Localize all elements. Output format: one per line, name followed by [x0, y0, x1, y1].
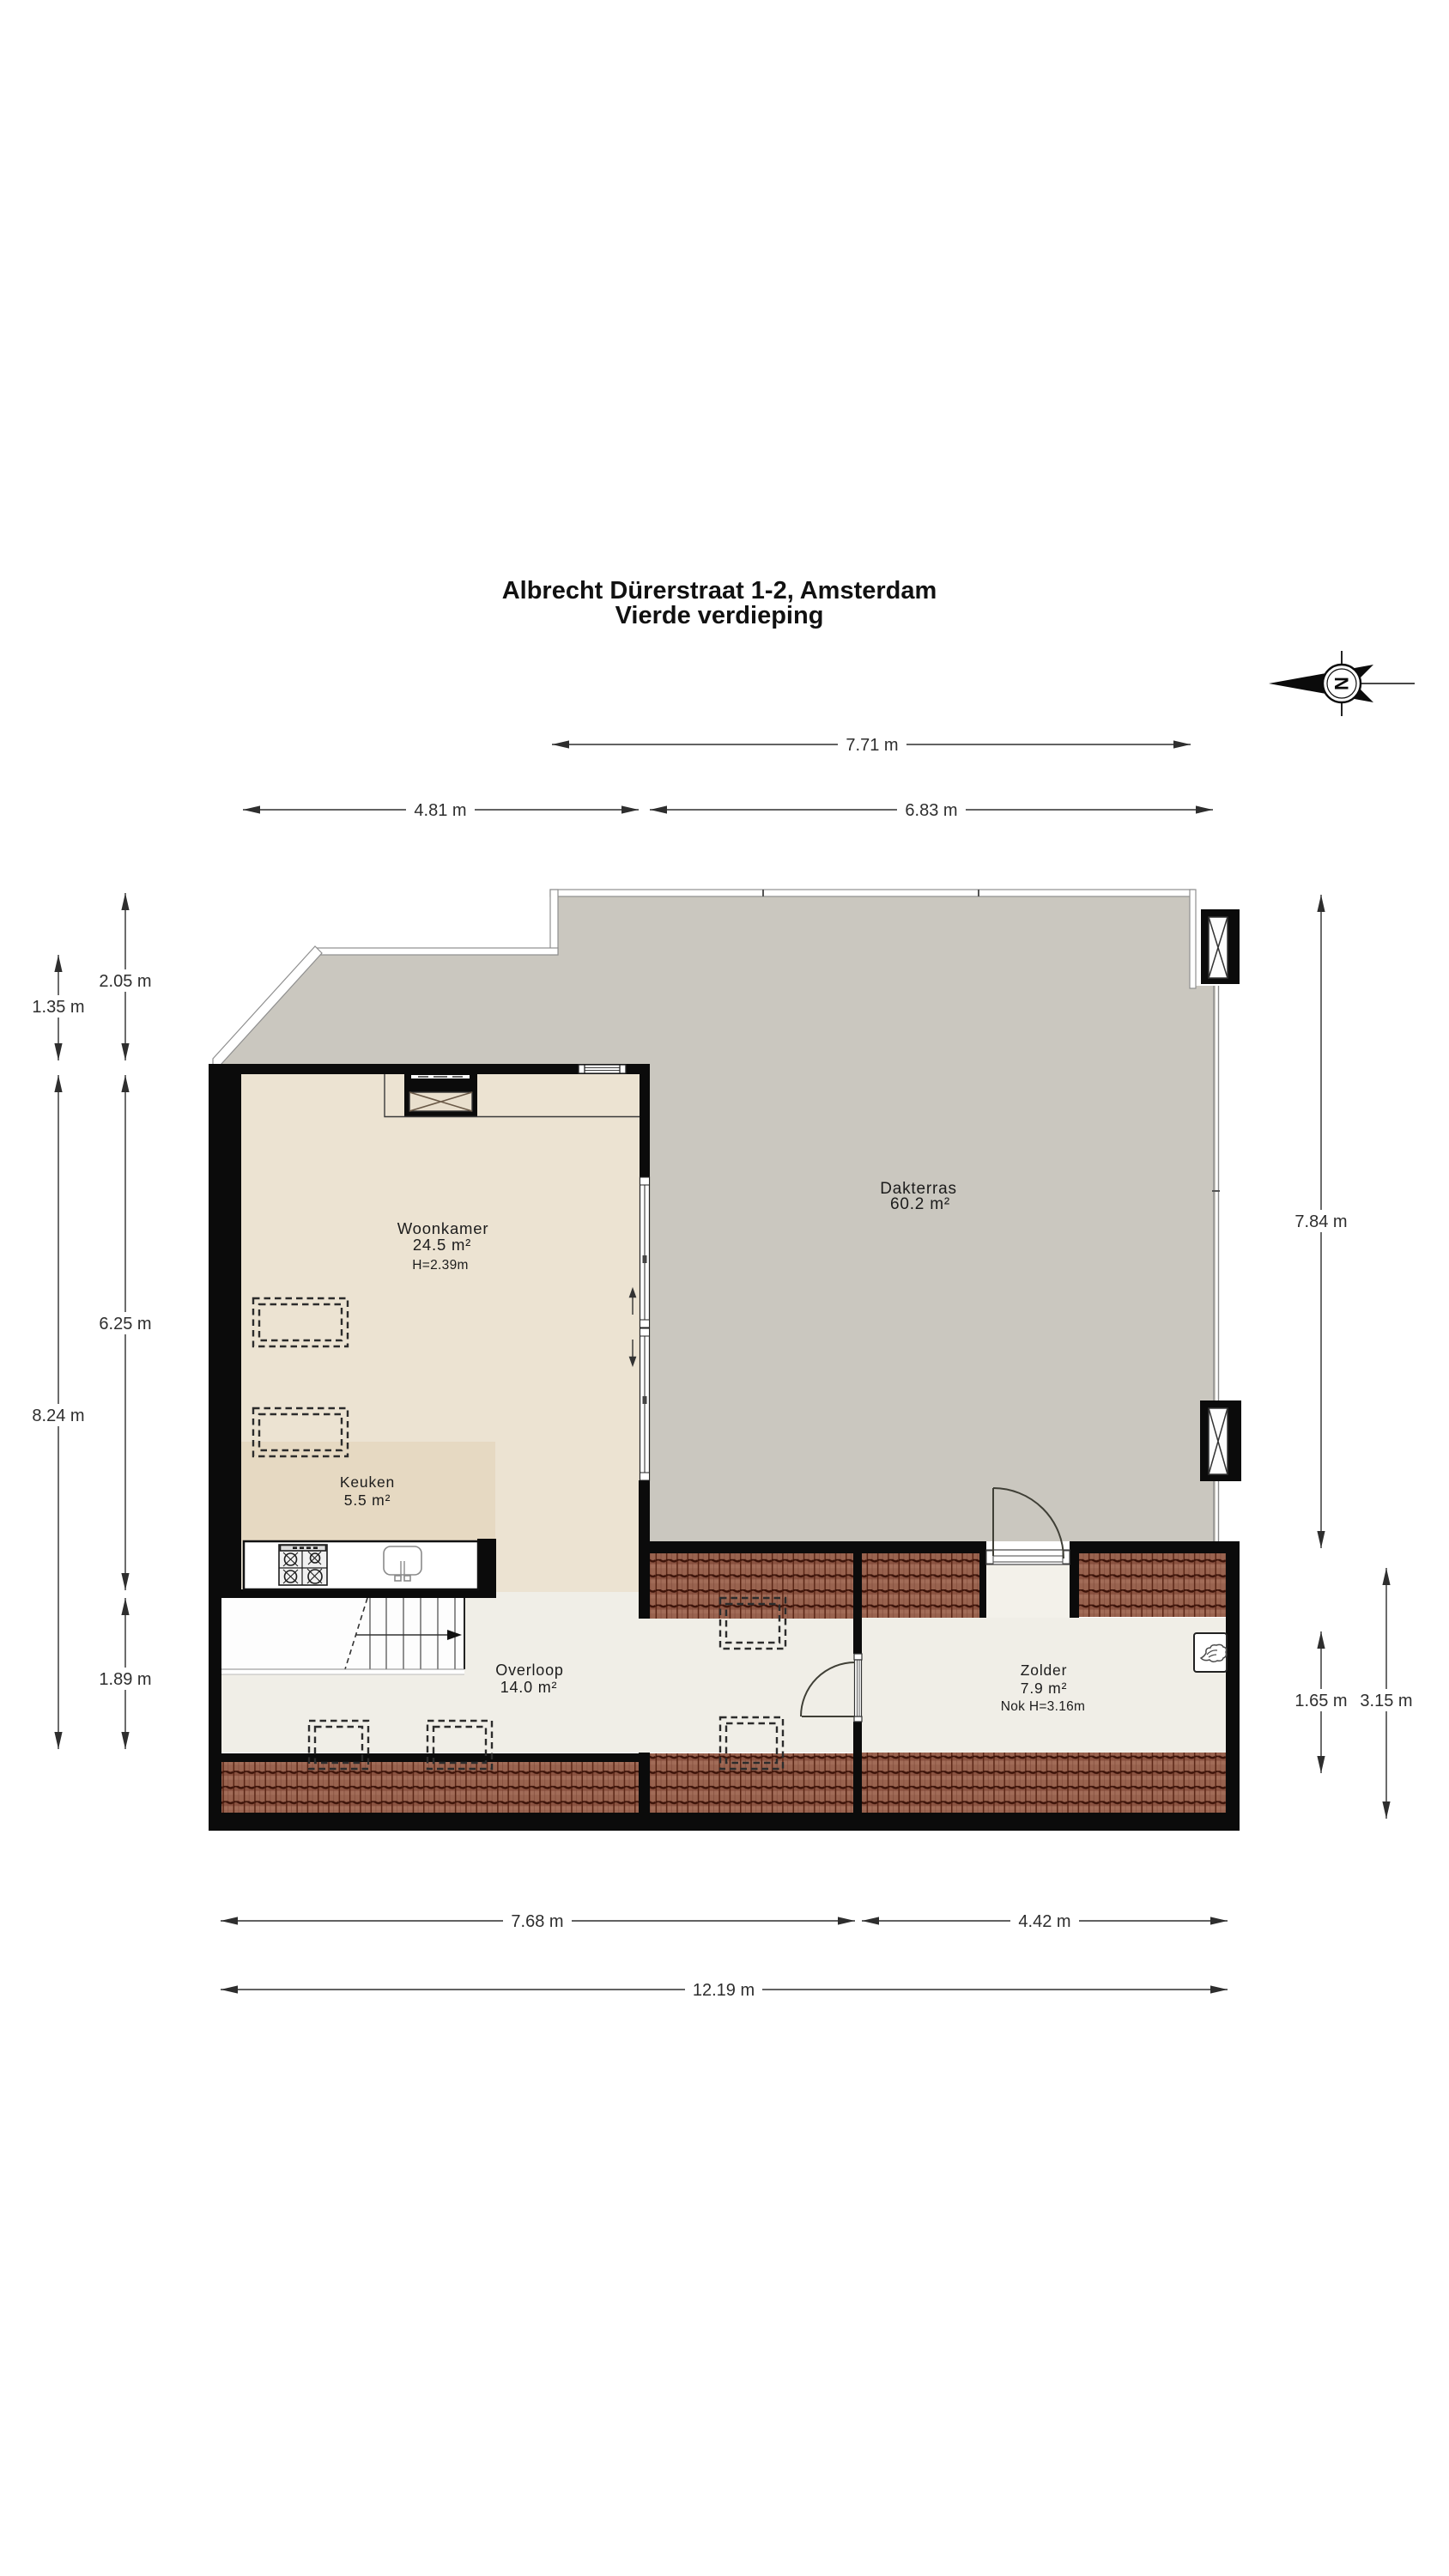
svg-text:8.24 m: 8.24 m — [32, 1406, 84, 1425]
svg-text:7.68 m: 7.68 m — [511, 1912, 563, 1931]
svg-text:3.15 m: 3.15 m — [1360, 1692, 1412, 1710]
svg-text:4.42 m: 4.42 m — [1018, 1912, 1070, 1931]
svg-text:Keuken: Keuken — [340, 1473, 395, 1491]
svg-text:4.81 m: 4.81 m — [414, 801, 466, 820]
svg-text:Zolder: Zolder — [1021, 1662, 1067, 1679]
svg-text:14.0 m²: 14.0 m² — [500, 1679, 558, 1696]
svg-text:1.65 m: 1.65 m — [1294, 1692, 1347, 1710]
svg-text:Albrecht Dürerstraat 1-2, Amst: Albrecht Dürerstraat 1-2, Amsterdam — [502, 577, 937, 605]
svg-text:7.9 m²: 7.9 m² — [1021, 1680, 1067, 1697]
svg-text:60.2 m²: 60.2 m² — [890, 1195, 950, 1213]
svg-text:7.84 m: 7.84 m — [1294, 1212, 1347, 1231]
svg-text:Overloop: Overloop — [495, 1662, 563, 1679]
svg-text:7.71 m: 7.71 m — [846, 736, 898, 755]
svg-text:Woonkamer: Woonkamer — [397, 1219, 489, 1237]
svg-text:Vierde verdieping: Vierde verdieping — [615, 602, 824, 629]
svg-text:2.05 m: 2.05 m — [99, 972, 151, 991]
svg-text:1.35 m: 1.35 m — [32, 998, 84, 1017]
svg-text:6.83 m: 6.83 m — [905, 801, 957, 820]
svg-text:6.25 m: 6.25 m — [99, 1315, 151, 1334]
svg-text:24.5 m²: 24.5 m² — [413, 1236, 471, 1254]
svg-text:5.5 m²: 5.5 m² — [344, 1492, 391, 1509]
svg-text:1.89 m: 1.89 m — [99, 1670, 151, 1689]
svg-text:Nok H=3.16m: Nok H=3.16m — [1001, 1699, 1086, 1714]
svg-text:N: N — [1331, 677, 1353, 690]
svg-text:H=2.39m: H=2.39m — [412, 1258, 468, 1273]
svg-text:12.19 m: 12.19 m — [693, 1981, 755, 2000]
